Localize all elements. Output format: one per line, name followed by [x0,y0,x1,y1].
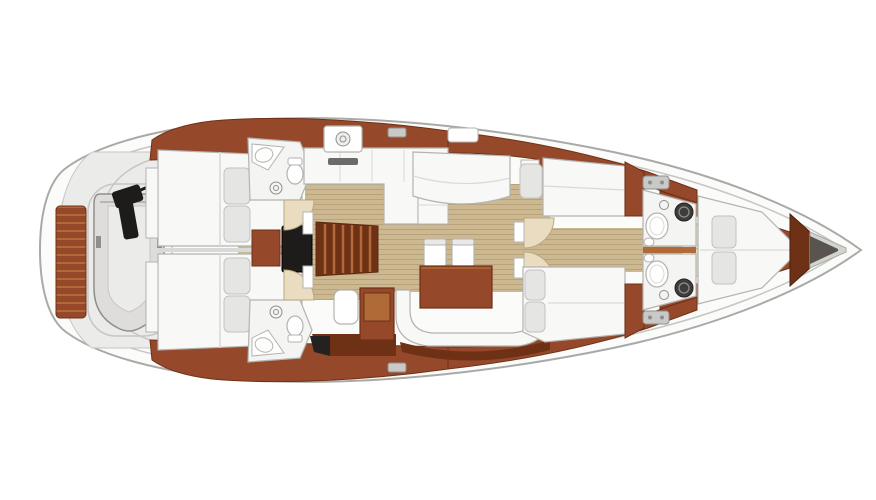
salon-table [420,266,492,308]
deck-hatch-icon [448,128,478,142]
pillow-icon [712,252,736,284]
door-panel [514,222,524,242]
dinghy-handle-a [96,236,101,248]
chair-backrest [452,239,474,245]
wardrobe-wood [625,284,644,338]
heads-divider-wood [643,247,696,253]
pillow-icon [525,270,545,300]
sink-icon [644,238,654,246]
toilet-tank [288,335,302,342]
dinette-chair [452,242,474,268]
pillow-icon [712,216,736,248]
side-shelf [146,168,158,238]
pillow-icon [224,168,250,204]
cleat-icon [643,311,669,324]
port-settee [413,152,510,204]
wardrobe-wood [625,162,644,216]
yacht-floorplan [0,0,876,500]
stove-icon [328,158,358,165]
dinette-chair [424,242,446,268]
companionway-stairs [316,222,378,276]
sink-icon [336,132,350,146]
chart-table-top [364,293,390,321]
toilet-icon [287,316,303,336]
pillow-icon [520,164,542,198]
door-panel [303,266,313,288]
aft-head-port [248,138,312,200]
side-shelf [146,262,158,332]
washer-port-icon [675,279,693,297]
wood-cabinet-block [252,230,280,266]
vent-fitting [388,363,406,372]
sink-icon [644,254,654,262]
washer-port-icon [675,203,693,221]
pillow-icon [224,296,250,332]
cleat-icon [643,176,669,189]
door-panel [303,212,313,234]
pillow-icon [224,206,250,242]
yacht-floorplan-canvas: Sailing yacht interior deck layout plan,… [0,0,876,500]
nav-seat [334,290,358,324]
pillow-icon [525,302,545,332]
swim-step-teak [56,206,86,318]
pillow-icon [224,258,250,294]
chair-backrest [424,239,446,245]
aft-head-starboard [248,300,312,362]
toilet-icon [287,164,303,184]
toilet-tank [288,158,302,165]
vent-fitting [388,128,406,137]
